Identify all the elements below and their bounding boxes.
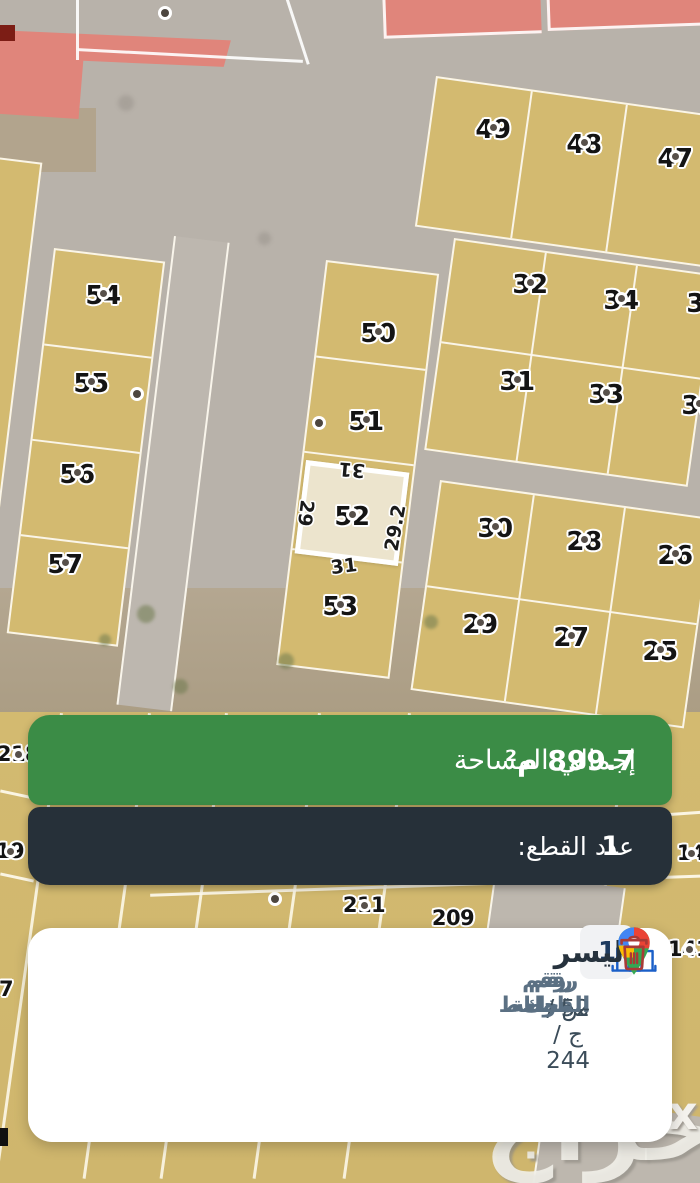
road-smudge bbox=[258, 232, 271, 245]
road-smudge bbox=[118, 95, 134, 111]
map-marker-dot bbox=[133, 390, 141, 398]
map-marker-dot bbox=[161, 9, 169, 17]
red-marker bbox=[0, 25, 15, 41]
tree bbox=[424, 615, 438, 629]
red-plot bbox=[382, 0, 541, 39]
plot-details-card: 1 اليسر bbox=[28, 928, 672, 1142]
tree bbox=[278, 653, 294, 669]
block-number-value: - bbox=[582, 996, 590, 1022]
parcel-map-screen: 4948473234363133353028262927255455565750… bbox=[0, 0, 700, 1183]
card-fields: رقم القطعة 52 رقم المخطط س / ج / 244 رقم… bbox=[546, 952, 634, 968]
road-line bbox=[285, 0, 309, 65]
map-marker-dot bbox=[271, 895, 279, 903]
plot-count-banner: عدد القطع: 1 bbox=[28, 807, 672, 885]
parcel-block-31-36[interactable] bbox=[424, 238, 700, 487]
parcel-block-25-30[interactable] bbox=[410, 480, 700, 728]
selected-plot-dim-left: 29 bbox=[294, 499, 316, 528]
total-area-value: 899.7 م² bbox=[505, 744, 636, 777]
selected-plot-dim-top: 31 bbox=[338, 458, 366, 479]
haraj-watermark-x: x bbox=[668, 1086, 698, 1140]
plot-count-value: 1 bbox=[601, 831, 620, 862]
map-marker-dot bbox=[315, 419, 323, 427]
total-area-banner: إجمالي المساحة 899.7 م² bbox=[28, 715, 672, 805]
tree bbox=[173, 679, 188, 694]
block-number-label: رقم البلوك bbox=[522, 968, 590, 1018]
red-plot bbox=[546, 0, 700, 31]
clipped-plot-label bbox=[0, 1128, 8, 1146]
selected-plot-dim-bottom: 31 bbox=[330, 556, 359, 578]
tree bbox=[137, 605, 155, 623]
tree bbox=[99, 634, 111, 646]
